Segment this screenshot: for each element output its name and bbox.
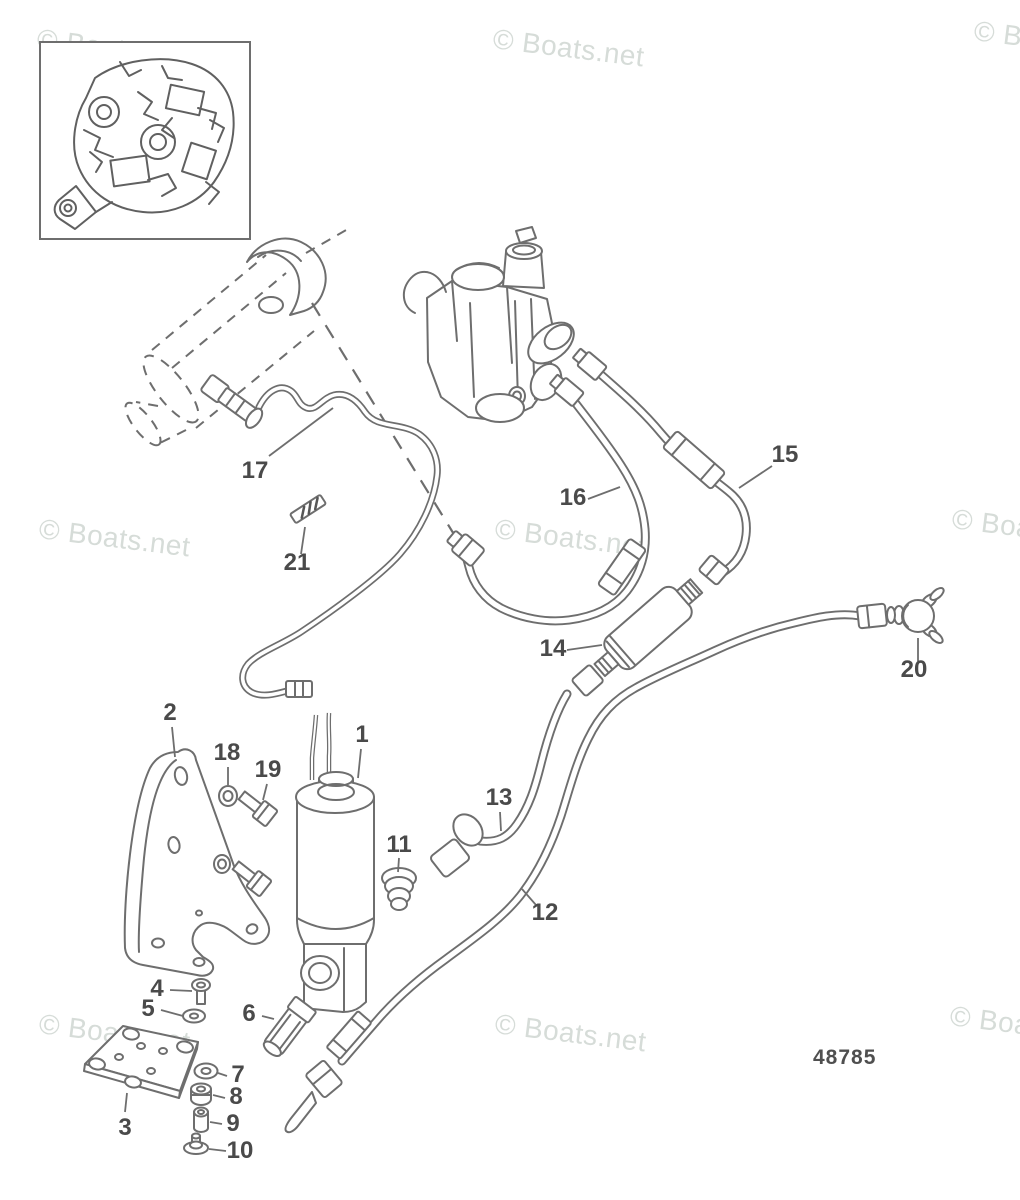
diagram-canvas: © Boats.net © Boats.net © Boats.net © Bo… xyxy=(0,0,1020,1200)
callout-10-leader xyxy=(209,1149,226,1151)
callout-16: 16 xyxy=(560,484,587,511)
callout-13: 13 xyxy=(486,784,513,811)
callout-20: 20 xyxy=(901,656,928,683)
hose-15-elbow-nut xyxy=(698,555,729,586)
tube-17 xyxy=(199,374,437,697)
callout-3-leader xyxy=(125,1093,127,1112)
watermark: © Boats.net xyxy=(948,1000,1020,1049)
hose-16-end-nut xyxy=(444,527,485,566)
drawing-number: 48785 xyxy=(813,1046,876,1069)
fitting-6 xyxy=(259,996,316,1060)
solenoid-1 xyxy=(296,713,374,1012)
callout-19: 19 xyxy=(255,756,282,783)
callout-12: 12 xyxy=(532,899,559,926)
callout-3: 3 xyxy=(118,1114,131,1141)
callout-10: 10 xyxy=(227,1137,254,1164)
watermark: © Boats.net xyxy=(972,15,1020,64)
hose-12-right-nut xyxy=(857,604,887,629)
tube-17-top-fitting xyxy=(199,374,265,431)
callout-4-leader xyxy=(170,990,192,991)
screw-10 xyxy=(184,1134,208,1155)
callout-16-leader xyxy=(588,487,620,499)
callout-1-leader xyxy=(358,749,361,778)
callout-2: 2 xyxy=(163,699,176,726)
callout-11: 11 xyxy=(386,831,411,858)
bolt-4 xyxy=(192,979,210,1004)
watermark: © Boats.net xyxy=(950,503,1020,552)
callout-11-leader xyxy=(398,858,399,872)
watermark: © Boats.net xyxy=(491,23,646,72)
tube-17-end-nut xyxy=(286,681,312,697)
callout-18: 18 xyxy=(214,739,241,766)
callout-7-leader xyxy=(218,1073,227,1076)
fitting-11 xyxy=(382,868,416,910)
pin-21 xyxy=(290,495,326,524)
callout-9-leader xyxy=(210,1122,222,1124)
parts-diagram-page: © Boats.net © Boats.net © Boats.net © Bo… xyxy=(0,0,1020,1200)
callout-8: 8 xyxy=(229,1083,242,1110)
callout-1: 1 xyxy=(355,721,368,748)
watermark: © Boats.net xyxy=(37,513,192,562)
solenoid-port xyxy=(301,956,339,990)
hose-12-tip xyxy=(285,1092,316,1132)
callout-5-leader xyxy=(161,1010,183,1016)
callout-9: 9 xyxy=(226,1110,239,1137)
washer-5 xyxy=(183,1010,205,1023)
watermark: © Boats.net xyxy=(493,1008,648,1057)
callout-14-leader xyxy=(567,645,602,650)
callout-5: 5 xyxy=(141,995,154,1022)
callout-15: 15 xyxy=(772,441,799,468)
callout-8-leader xyxy=(213,1095,225,1098)
reference-cylinder-dashed xyxy=(120,229,455,536)
callout-17: 17 xyxy=(242,457,269,484)
spacer-9 xyxy=(194,1108,208,1133)
callout-14: 14 xyxy=(540,635,567,662)
callout-13-leader xyxy=(500,812,501,831)
callout-numbers: 1 2 3 4 5 6 7 8 9 10 11 12 13 14 15 16 1… xyxy=(118,441,927,1164)
callout-6: 6 xyxy=(242,1000,255,1027)
callout-17-leader xyxy=(269,408,333,456)
hose-15-sleeve xyxy=(663,431,726,490)
washer-7 xyxy=(195,1064,218,1079)
bracket-2 xyxy=(125,749,269,975)
engine-inset xyxy=(40,42,250,239)
grommet-8 xyxy=(191,1084,211,1106)
callout-15-leader xyxy=(739,466,772,488)
callout-19-leader xyxy=(263,784,267,800)
callout-6-leader xyxy=(262,1016,274,1019)
tee-fitting-20 xyxy=(887,586,946,645)
callout-21: 21 xyxy=(284,549,311,576)
